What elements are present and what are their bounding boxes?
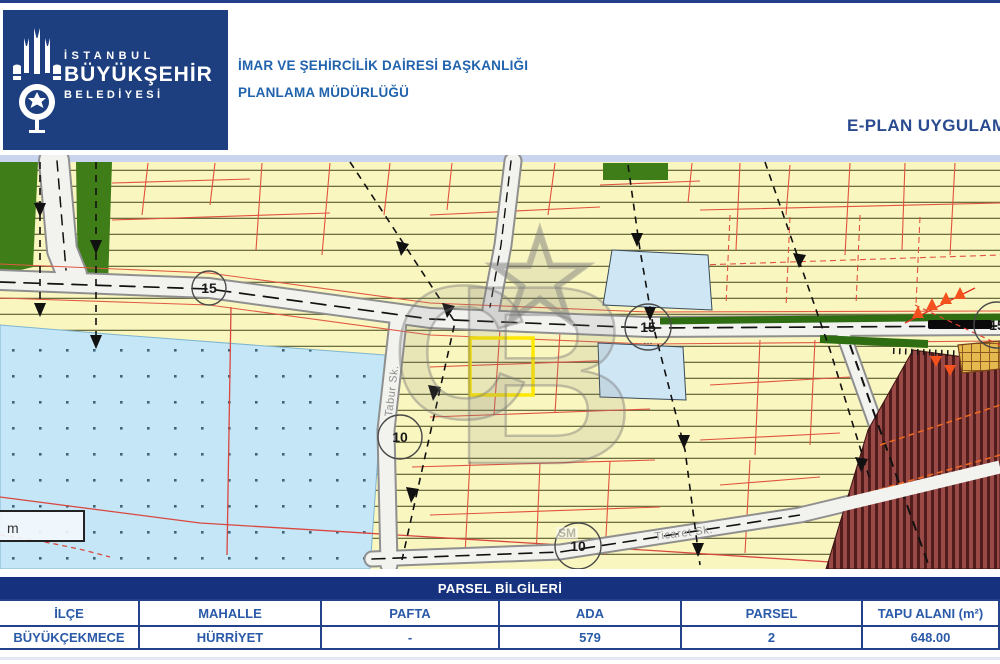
department-line2: PLANLAMA MÜDÜRLÜĞÜ: [238, 79, 528, 106]
department-title: İMAR VE ŞEHİRCİLİK DAİRESİ BAŞKANLIĞI PL…: [238, 52, 528, 106]
app-title: E-PLAN UYGULAM: [847, 116, 1000, 136]
department-line1: İMAR VE ŞEHİRCİLİK DAİRESİ BAŞKANLIĞI: [238, 52, 528, 79]
parcel-info-table: PARSEL BİLGİLERİ İLÇEMAHALLEPAFTAADAPARS…: [0, 577, 1000, 650]
table-header-row: İLÇEMAHALLEPAFTAADAPARSELTAPU ALANI (m²): [0, 599, 1000, 627]
logo-line2: BÜYÜKŞEHİR: [64, 63, 213, 87]
bottom-divider: [0, 657, 1000, 660]
table-title-bar: PARSEL BİLGİLERİ: [0, 577, 1000, 599]
row-value-3: -: [322, 627, 500, 650]
logo-line1: İSTANBUL: [64, 50, 213, 62]
svg-text:15: 15: [201, 280, 217, 296]
column-header-4: ADA: [500, 601, 682, 627]
svg-text:10: 10: [392, 429, 408, 445]
row-value-2: HÜRRİYET: [140, 627, 322, 650]
row-value-1: BÜYÜKÇEKMECE: [0, 627, 140, 650]
column-header-2: MAHALLE: [140, 601, 322, 627]
svg-text:15: 15: [989, 317, 1000, 333]
logo-line3: BELEDİYESİ: [64, 89, 213, 101]
row-value-6: 648.00: [863, 627, 1000, 650]
svg-text:15: 15: [640, 319, 656, 335]
table-data-row: BÜYÜKÇEKMECEHÜRRİYET-5792648.00: [0, 627, 1000, 650]
column-header-5: PARSEL: [682, 601, 863, 627]
column-header-3: PAFTA: [322, 601, 500, 627]
svg-text:10: 10: [570, 538, 586, 554]
ibb-emblem-icon: [11, 26, 63, 138]
municipality-logo: İSTANBUL BÜYÜKŞEHİR BELEDİYESİ: [3, 10, 228, 150]
scale-unit-label: m: [7, 520, 19, 536]
row-value-5: 2: [682, 627, 863, 650]
svg-text:...: ...: [643, 335, 652, 347]
top-divider: [0, 0, 1000, 3]
eplan-page: İSTANBUL BÜYÜKŞEHİR BELEDİYESİ İMAR VE Ş…: [0, 0, 1000, 664]
column-header-1: İLÇE: [0, 601, 140, 627]
plan-map-canvas[interactable]: m 1515...101015Tabur Sk.Ticaret Sk.: [0, 155, 1000, 569]
row-value-4: 579: [500, 627, 682, 650]
column-header-6: TAPU ALANI (m²): [863, 601, 1000, 627]
